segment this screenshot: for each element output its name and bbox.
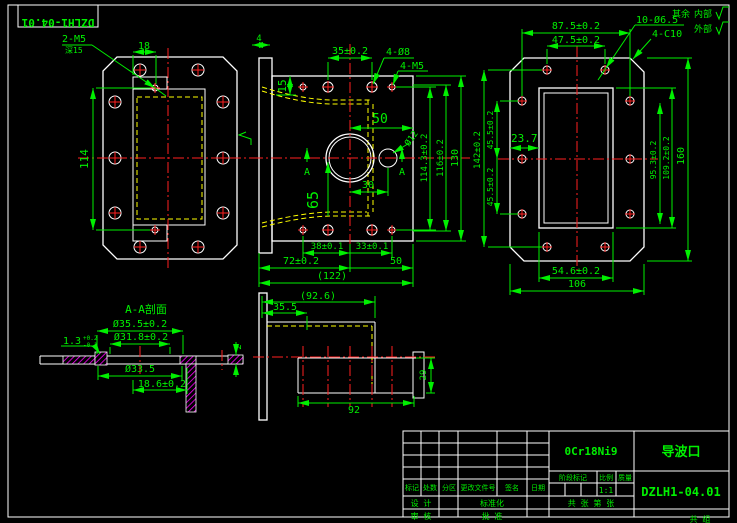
rev-col-sign: 签名 bbox=[505, 483, 519, 492]
rev-col-mark: 标记 bbox=[405, 483, 419, 492]
right-view: 87.5±0.2 47.5±0.2 10-Ø6.5 4-C10 23.7 45.… bbox=[473, 14, 692, 295]
revision-header-row: 标记 处数 分区 更改文件号 签名 日期 bbox=[405, 483, 545, 492]
drawing-number: DZLH1-04.01 bbox=[641, 485, 720, 499]
dim-front-15: 15 bbox=[276, 79, 289, 92]
callout-depth: 深15 bbox=[65, 46, 83, 55]
label-chamfer: 4-C10 bbox=[652, 29, 682, 40]
roughness-icon bbox=[239, 132, 251, 145]
scale-label: 比例 bbox=[599, 473, 613, 482]
section-view: A-A剖面 Ø35.5±0.2 Ø31.8±0.2 Ø33.5 18.6±0.2… bbox=[40, 302, 244, 412]
dim-bottom-92-6: (92.6) bbox=[300, 291, 336, 302]
dim-front-130: 130 bbox=[450, 149, 461, 167]
section-mark-a: A A bbox=[304, 148, 405, 178]
front-view: A A 4 15 35±0.2 4-Ø8 4-M5 50 65 30 Ø12 bbox=[239, 34, 470, 287]
dim-front-30: 30 bbox=[362, 180, 374, 191]
dim-bottom-29: 29 bbox=[419, 370, 429, 381]
dim-front-50-bottom: 50 bbox=[390, 256, 402, 267]
cad-sheet: DZLH1-04.01 其余 内部 外部 bbox=[0, 0, 737, 523]
drawing-canvas: DZLH1-04.01 其余 内部 外部 bbox=[0, 0, 737, 523]
dim-front-35: 35±0.2 bbox=[332, 46, 368, 57]
dim-sec-18-6: 18.6±0.2 bbox=[138, 379, 186, 390]
bottom-partial-text: 共 组 bbox=[690, 514, 711, 523]
surface-note-outer: 外部 bbox=[694, 23, 712, 35]
dim-front-72: 72±0.2 bbox=[283, 256, 319, 267]
dim-front-33: 33±0.1 bbox=[356, 242, 389, 252]
dim-right-106: 106 bbox=[568, 279, 586, 290]
dim-sec-1-3: 1.3 bbox=[63, 336, 81, 347]
callout-2m5: 2-M5 bbox=[62, 34, 86, 45]
dim-sec-d31-8: Ø31.8±0.2 bbox=[114, 331, 168, 343]
material-value: 0Cr18Ni9 bbox=[565, 445, 618, 458]
dim-right-160: 160 bbox=[676, 147, 687, 165]
bottom-view: (92.6) 35.5 92 29 bbox=[253, 291, 437, 420]
dim-sec-2: 2 bbox=[234, 344, 244, 349]
sign-standard: 标准化 bbox=[480, 498, 504, 508]
part-name: 导波口 bbox=[661, 444, 700, 460]
dim-left-114: 114 bbox=[78, 149, 91, 169]
scale-value: 1:1 bbox=[599, 486, 614, 495]
stage-mark-label: 阶段标记 bbox=[559, 473, 587, 482]
label-10-holes: 10-Ø6.5 bbox=[636, 14, 678, 26]
dim-front-4: 4 bbox=[256, 34, 261, 44]
label-4xd8: 4-Ø8 bbox=[386, 46, 410, 58]
surface-note-inner: 内部 bbox=[694, 8, 712, 20]
roughness-icon bbox=[716, 22, 729, 34]
dim-right-45-5-upper: 45.5±0.2 bbox=[486, 111, 495, 150]
dim-sec-d33-5: Ø33.5 bbox=[125, 363, 155, 375]
corner-stamp: DZLH1-04.01 bbox=[21, 16, 94, 29]
dim-front-116: 116±0.2 bbox=[436, 139, 446, 177]
sign-approve: 批 准 bbox=[482, 511, 503, 521]
dim-right-45-5-lower: 45.5±0.2 bbox=[486, 168, 495, 207]
rev-col-date: 日期 bbox=[531, 484, 545, 492]
rev-col-docno: 更改文件号 bbox=[461, 483, 496, 492]
rev-col-zone: 分区 bbox=[442, 483, 456, 492]
dim-right-95-3: 95.3±0.2 bbox=[649, 141, 658, 180]
roughness-icon bbox=[716, 7, 729, 19]
dim-front-50-top: 50 bbox=[372, 112, 388, 127]
dim-right-54-6: 54.6±0.2 bbox=[552, 266, 600, 277]
title-block: 标记 处数 分区 更改文件号 签名 日期 设 计 标准化 审 核 批 准 0Cr… bbox=[403, 431, 729, 523]
section-letter: A bbox=[304, 167, 310, 178]
dim-bottom-35-5: 35.5 bbox=[273, 302, 297, 313]
dim-sec-d35-5: Ø35.5±0.2 bbox=[113, 318, 167, 330]
dim-right-47-5: 47.5±0.2 bbox=[552, 35, 600, 46]
sign-design: 设 计 bbox=[411, 498, 432, 508]
left-view: 114 18 2-M5 深15 bbox=[62, 34, 258, 268]
dim-bottom-92: 92 bbox=[348, 405, 360, 416]
dim-right-23-7: 23.7 bbox=[511, 132, 538, 145]
dim-front-65: 65 bbox=[304, 191, 322, 209]
dim-right-87-5: 87.5±0.2 bbox=[552, 21, 600, 32]
section-title: A-A剖面 bbox=[125, 302, 167, 316]
dim-front-114-3: 114.3±0.2 bbox=[420, 134, 430, 183]
label-4xm5: 4-M5 bbox=[400, 61, 424, 72]
dim-right-142: 142±0.2 bbox=[473, 131, 483, 169]
section-letter: A bbox=[399, 167, 405, 178]
rev-col-count: 处数 bbox=[423, 483, 437, 492]
dim-front-38: 38±0.1 bbox=[311, 242, 344, 252]
sheet-info: 共 张 第 张 bbox=[568, 498, 614, 508]
dim-left-18: 18 bbox=[138, 41, 150, 52]
dim-sec-1-3-upper-tol: +0.2 bbox=[83, 335, 98, 342]
dim-front-122: (122) bbox=[317, 271, 347, 282]
mass-label: 质量 bbox=[618, 473, 632, 482]
dim-right-109-2: 109.2±0.2 bbox=[662, 136, 671, 180]
sign-check: 审 核 bbox=[411, 511, 432, 521]
